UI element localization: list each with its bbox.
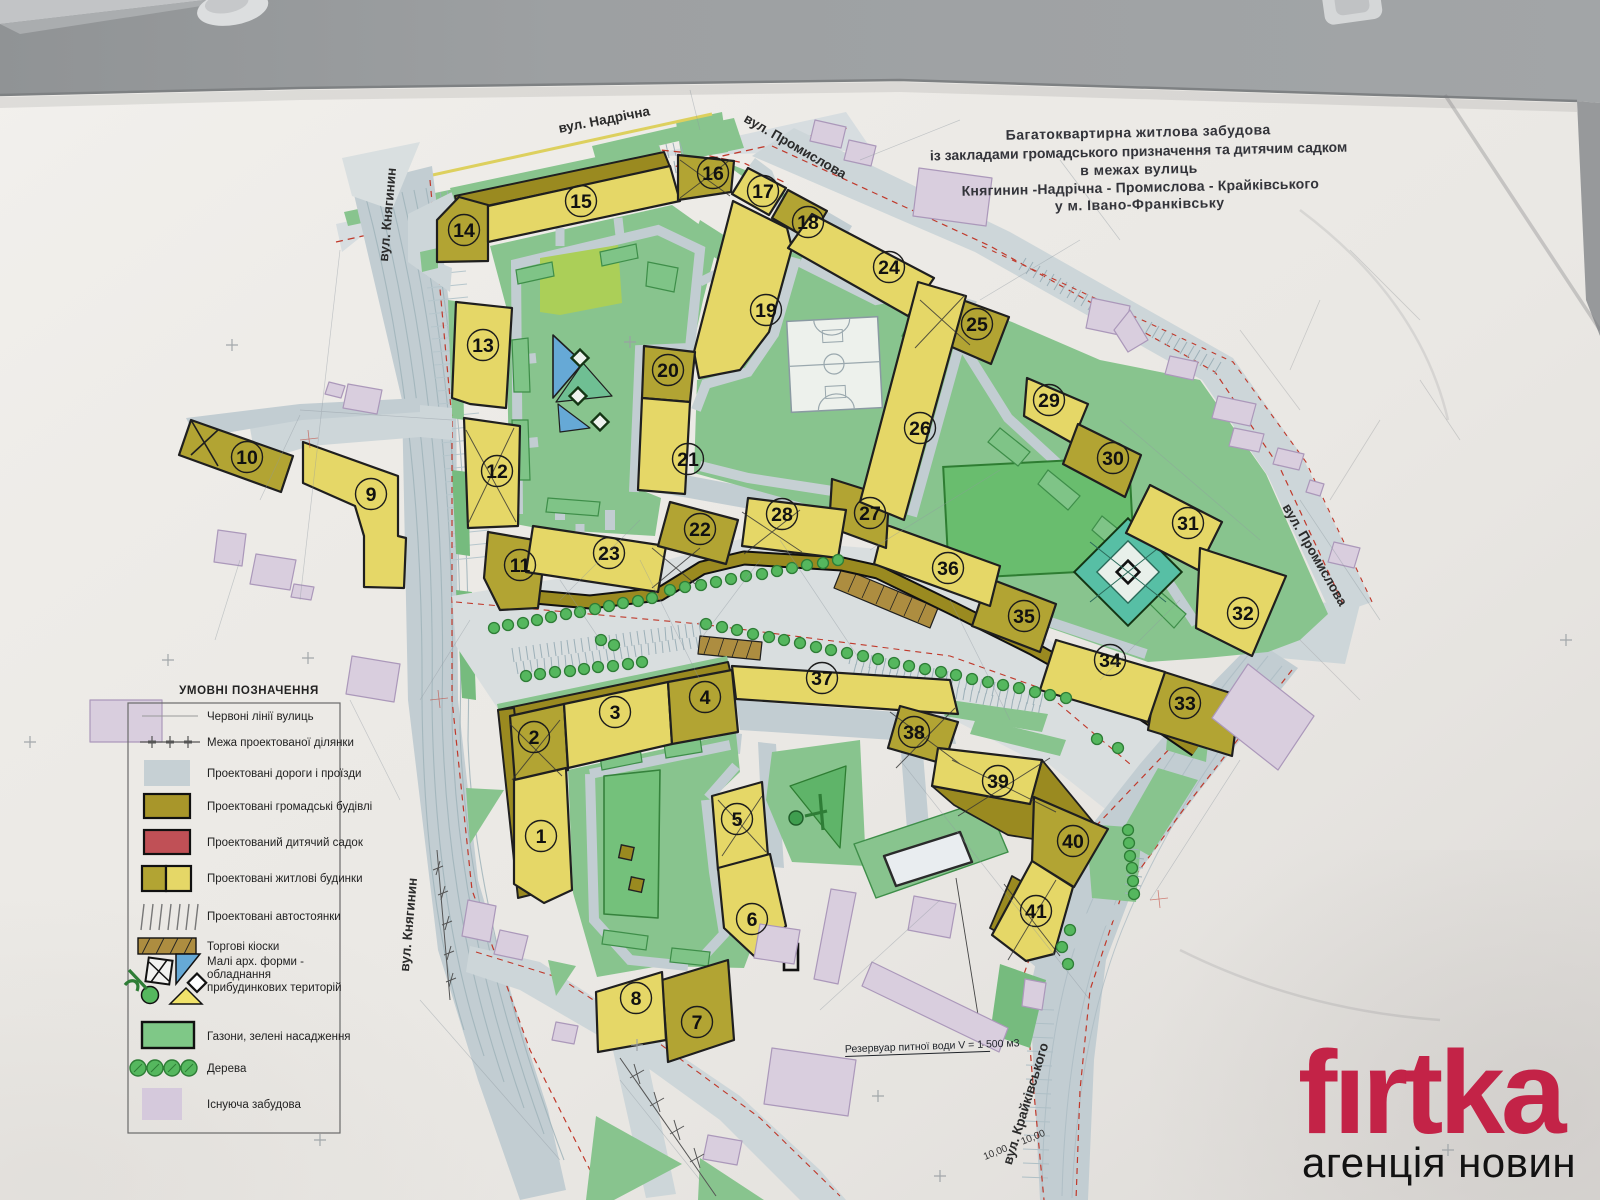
svg-text:Проектовані дороги і проїзди: Проектовані дороги і проїзди: [207, 768, 361, 780]
svg-text:обладнання: обладнання: [207, 969, 271, 981]
svg-text:10: 10: [236, 447, 258, 469]
svg-text:29: 29: [1038, 390, 1060, 412]
svg-text:41: 41: [1025, 901, 1047, 923]
svg-text:20: 20: [657, 360, 679, 382]
svg-text:11: 11: [510, 555, 531, 577]
svg-text:19: 19: [755, 300, 777, 322]
svg-text:27: 27: [859, 503, 881, 525]
svg-text:6: 6: [747, 909, 758, 931]
svg-text:Газони, зелені насадження: Газони, зелені насадження: [207, 1031, 351, 1043]
svg-text:агенція новин: агенція новин: [1302, 1139, 1576, 1186]
svg-text:17: 17: [752, 181, 774, 203]
svg-text:26: 26: [909, 418, 931, 440]
svg-text:38: 38: [903, 722, 925, 744]
svg-text:39: 39: [987, 771, 1009, 793]
svg-text:3: 3: [610, 702, 621, 724]
svg-text:14: 14: [453, 220, 475, 242]
svg-text:13: 13: [472, 335, 494, 357]
svg-text:16: 16: [702, 163, 724, 185]
svg-text:Межа проектованої ділянки: Межа проектованої ділянки: [207, 737, 354, 749]
svg-text:32: 32: [1232, 603, 1254, 625]
svg-text:24: 24: [878, 257, 900, 279]
svg-text:Проектовані автостоянки: Проектовані автостоянки: [207, 911, 341, 923]
svg-text:УМОВНІ ПОЗНАЧЕННЯ: УМОВНІ ПОЗНАЧЕННЯ: [179, 685, 319, 697]
svg-text:23: 23: [598, 543, 620, 565]
svg-text:7: 7: [692, 1012, 703, 1034]
svg-text:22: 22: [689, 519, 711, 541]
svg-text:Торгові кіоски: Торгові кіоски: [207, 941, 279, 953]
svg-text:Дерева: Дерева: [207, 1063, 247, 1075]
svg-text:28: 28: [771, 504, 793, 526]
svg-text:прибудинкових територій: прибудинкових територій: [207, 982, 342, 994]
svg-text:12: 12: [486, 461, 508, 483]
svg-text:Червоні лінії вулиць: Червоні лінії вулиць: [207, 711, 314, 723]
svg-text:в межах вулиць: в межах вулиць: [1080, 160, 1198, 178]
svg-text:18: 18: [797, 212, 819, 234]
svg-text:Проектовані громадські будівлі: Проектовані громадські будівлі: [207, 801, 372, 813]
svg-text:Проектовані житлові будинки: Проектовані житлові будинки: [207, 873, 363, 885]
svg-text:33: 33: [1174, 693, 1196, 715]
svg-text:34: 34: [1099, 650, 1121, 672]
svg-text:30: 30: [1102, 448, 1124, 470]
svg-text:31: 31: [1177, 513, 1199, 535]
svg-text:36: 36: [937, 558, 959, 580]
svg-text:15: 15: [570, 191, 592, 213]
svg-text:40: 40: [1062, 831, 1084, 853]
svg-text:25: 25: [966, 314, 988, 336]
svg-text:1: 1: [536, 826, 547, 848]
svg-text:Малі арх. форми -: Малі арх. форми -: [207, 956, 304, 968]
svg-text:9: 9: [366, 484, 377, 506]
svg-text:Існуюча забудова: Існуюча забудова: [207, 1099, 301, 1111]
svg-text:4: 4: [700, 687, 711, 709]
svg-text:37: 37: [811, 668, 833, 690]
svg-text:35: 35: [1013, 606, 1035, 628]
svg-text:21: 21: [677, 449, 699, 471]
svg-text:5: 5: [732, 809, 743, 831]
svg-text:2: 2: [529, 727, 540, 749]
svg-text:8: 8: [631, 988, 642, 1010]
svg-text:Проектований дитячий садок: Проектований дитячий садок: [207, 837, 364, 849]
